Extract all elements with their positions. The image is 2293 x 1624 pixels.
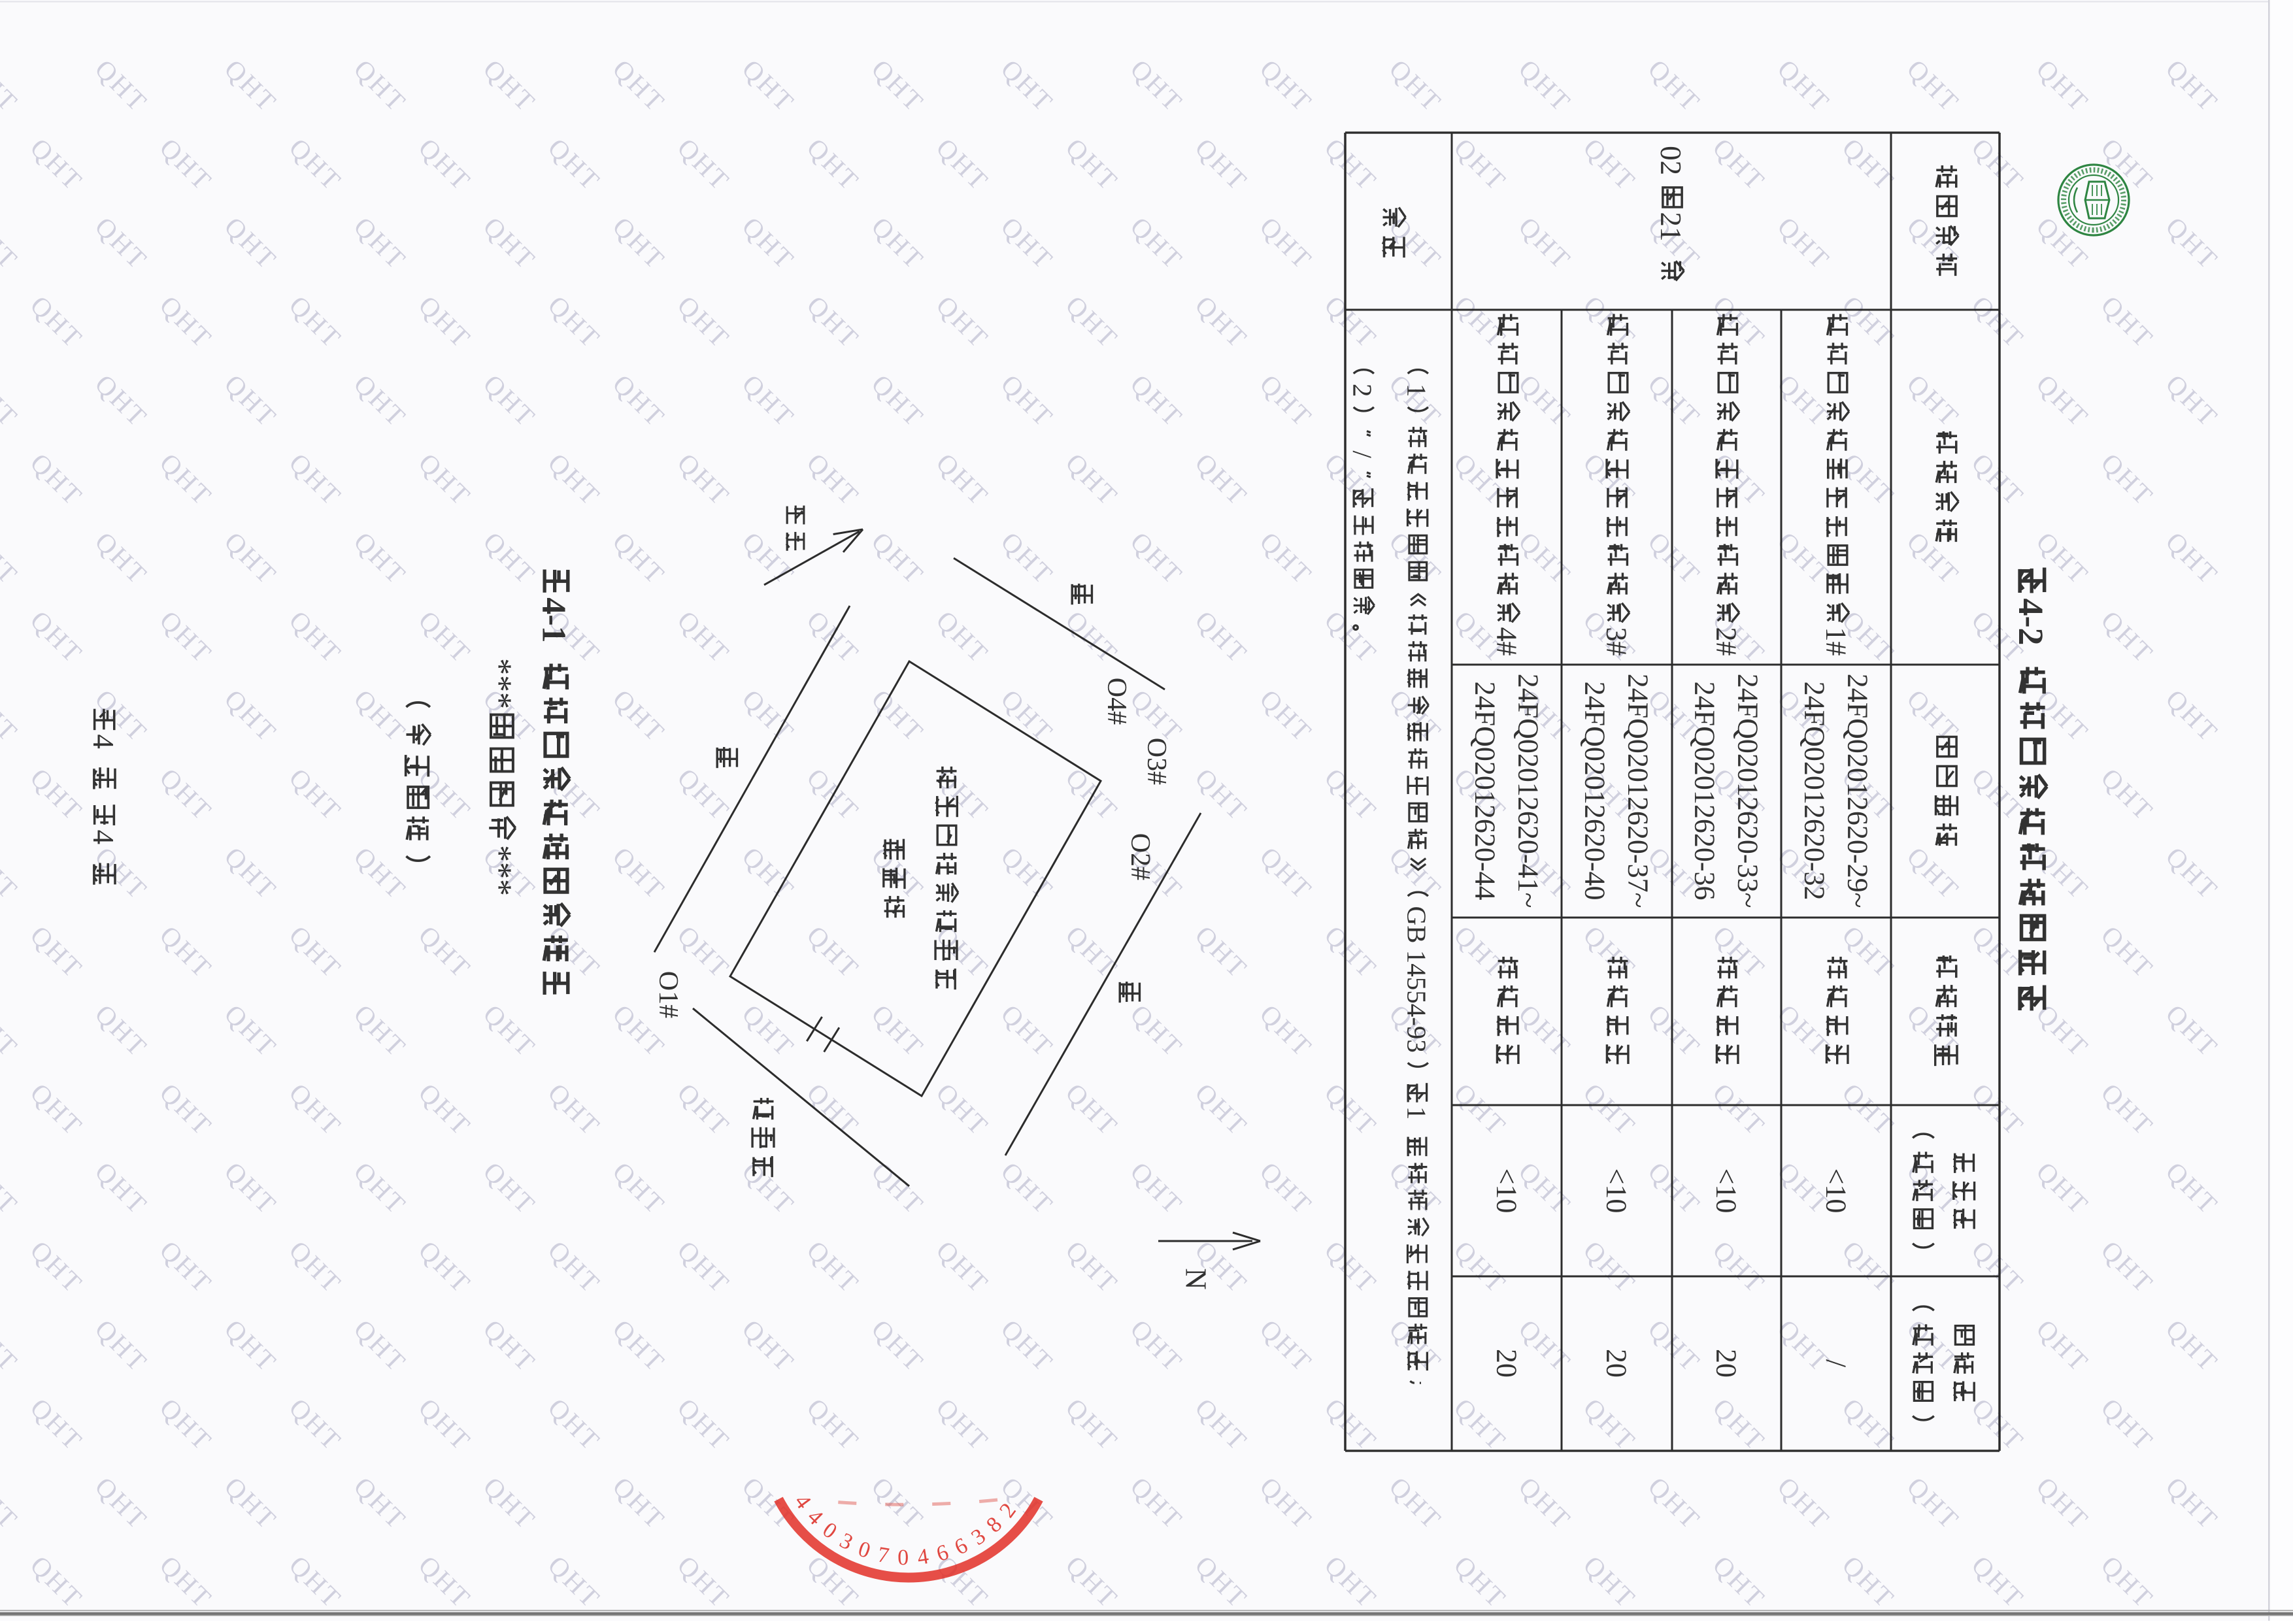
- svg-text:1#: 1#: [1820, 627, 1852, 656]
- svg-text:1: 1: [1401, 384, 1431, 397]
- svg-text:20: 20: [1600, 1349, 1632, 1378]
- svg-text:1: 1: [1401, 1106, 1431, 1120]
- svg-text:O1#: O1#: [653, 971, 683, 1018]
- svg-text:4: 4: [87, 734, 120, 749]
- svg-text:4#: 4#: [1490, 627, 1522, 656]
- svg-text:24FQ02012620-33~: 24FQ02012620-33~: [1732, 674, 1764, 908]
- svg-text:20: 20: [1710, 1349, 1742, 1378]
- svg-text:<10: <10: [1490, 1168, 1522, 1214]
- svg-text:4: 4: [87, 830, 120, 845]
- svg-text:<10: <10: [1820, 1168, 1852, 1214]
- svg-text:***: ***: [481, 845, 518, 896]
- svg-text:24FQ02012620-36: 24FQ02012620-36: [1688, 682, 1720, 901]
- svg-text:24FQ02012620-37~: 24FQ02012620-37~: [1622, 674, 1654, 908]
- svg-text:02: 02: [1654, 146, 1687, 175]
- svg-text:24FQ02012620-44: 24FQ02012620-44: [1469, 682, 1501, 901]
- svg-text:/: /: [1820, 1359, 1852, 1368]
- svg-text:/: /: [1347, 451, 1377, 459]
- svg-text:24FQ02012620-29~: 24FQ02012620-29~: [1841, 674, 1873, 908]
- svg-text:O4#: O4#: [1101, 678, 1131, 725]
- svg-text:N: N: [1180, 1268, 1213, 1289]
- svg-text:***: ***: [481, 658, 518, 709]
- svg-text:3#: 3#: [1600, 627, 1632, 656]
- svg-text:21: 21: [1654, 212, 1687, 241]
- svg-text:<10: <10: [1710, 1168, 1742, 1214]
- svg-text:<10: <10: [1600, 1168, 1632, 1214]
- svg-text:O2#: O2#: [1125, 833, 1155, 880]
- svg-text:4-1: 4-1: [535, 597, 573, 642]
- svg-text:24FQ02012620-41~: 24FQ02012620-41~: [1512, 674, 1544, 908]
- svg-text:20: 20: [1490, 1349, 1522, 1378]
- svg-text:O3#: O3#: [1141, 738, 1171, 785]
- svg-text:24FQ02012620-32: 24FQ02012620-32: [1798, 682, 1830, 901]
- svg-text:GB 14554-93: GB 14554-93: [1401, 906, 1431, 1053]
- svg-text:2: 2: [1347, 384, 1377, 397]
- svg-text:2#: 2#: [1710, 627, 1742, 656]
- svg-text:24FQ02012620-40: 24FQ02012620-40: [1579, 682, 1611, 901]
- svg-text:4-2: 4-2: [2011, 599, 2050, 646]
